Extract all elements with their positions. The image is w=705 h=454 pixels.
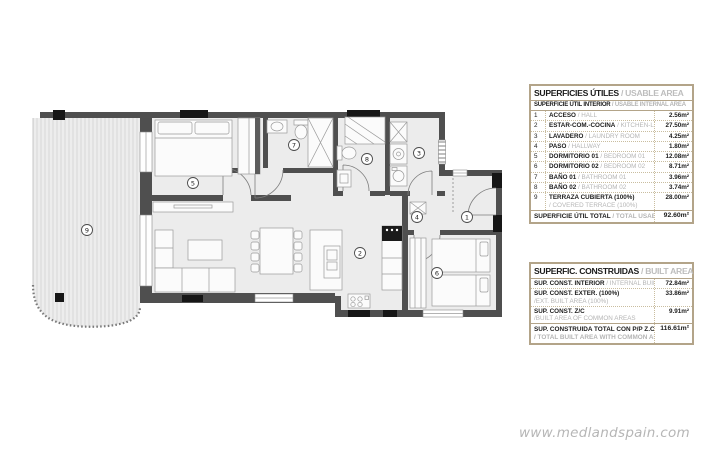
table-row: 6DORMITORIO 02 / BEDROOM 028.71m²: [531, 161, 692, 171]
window-entry-north: [453, 170, 467, 176]
built-area-table: SUPERFIC. CONSTRUIDAS / BUILT AREA SUP. …: [529, 262, 694, 345]
table-row: 8BAÑO 02 / BATHROOM 023.74m²: [531, 182, 692, 192]
dryer-machine: [390, 166, 407, 186]
table-row: 2ESTAR-COM.-COCINA / KITCHEN-LIVING27.50…: [531, 120, 692, 130]
sink-bathroom01: [267, 120, 287, 133]
table-row: 9TERRAZA CUBIERTA (100%)/ COVERED TERRAC…: [531, 192, 692, 210]
cooktop: [348, 294, 370, 308]
table-row: 3LAVADERO / LAUNDRY ROOM4.25m²: [531, 131, 692, 141]
room-label-9: 9: [82, 225, 93, 236]
svg-text:9: 9: [85, 226, 89, 234]
room-label-8: 8: [362, 154, 373, 165]
table-row: 4PASO / HALLWAY1.80m²: [531, 141, 692, 151]
shower-bathroom01: [308, 118, 333, 167]
built-table-rows: SUP. CONST. INTERIOR / INTERNAL BUILT AR…: [531, 279, 692, 323]
closet-bedroom02: [410, 238, 426, 308]
table-row: SUP. CONST. Z/C/BUILT AREA OF COMMON ARE…: [531, 306, 692, 324]
shower-bathroom02: [345, 117, 385, 144]
toilet-bathroom01: [294, 120, 308, 139]
window-laundry-east: [439, 140, 446, 164]
svg-text:7: 7: [292, 141, 296, 149]
washing-machine: [390, 144, 407, 164]
dining-table: [260, 228, 293, 274]
bed-single-a: [432, 239, 490, 272]
svg-text:5: 5: [191, 179, 195, 187]
table-row: 7BAÑO 01 / BATHROOM 013.96m²: [531, 172, 692, 182]
floor-plan: 1 2 3 4 5 6 7 8 9: [24, 72, 510, 354]
bed-single-b: [432, 275, 490, 306]
svg-text:1: 1: [465, 213, 469, 221]
built-total-row: SUP. CONSTRUIDA TOTAL CON P/P Z.C/ TOTAL…: [531, 323, 692, 343]
built-table-title: SUPERFIC. CONSTRUIDAS / BUILT AREA: [531, 264, 692, 279]
room-label-4: 4: [412, 212, 423, 223]
window-bedroom02-south: [423, 310, 463, 317]
room-label-3: 3: [414, 148, 425, 159]
usable-area-table: SUPERFICIES ÚTILES / USABLE AREA SUPERFI…: [529, 84, 694, 224]
svg-text:2: 2: [358, 249, 362, 257]
terrace-area: [33, 118, 140, 327]
sideboard: [153, 202, 233, 212]
floorplan-page: 1 2 3 4 5 6 7 8 9 SUPERFICIES ÚTILES / U…: [0, 0, 705, 454]
coffee-table: [188, 240, 222, 260]
svg-text:3: 3: [417, 149, 421, 157]
wardrobe: [238, 118, 260, 174]
room-label-7: 7: [289, 140, 300, 151]
window-living-west: [140, 215, 152, 286]
window-bedroom01-west: [140, 132, 152, 172]
room-label-5: 5: [188, 178, 199, 189]
usable-total-row: SUPERFICIE ÚTIL TOTAL / TOTAL USABLE ARE…: [531, 210, 692, 222]
kitchen-counter: [382, 226, 402, 290]
toilet-bathroom02: [337, 146, 356, 160]
table-row: SUP. CONST. EXTER. (100%)/EXT. BUILT ARE…: [531, 288, 692, 306]
table-row: SUP. CONST. INTERIOR / INTERNAL BUILT AR…: [531, 279, 692, 288]
oven: [382, 226, 402, 241]
svg-text:6: 6: [435, 269, 439, 277]
usable-table-subheader: SUPERFICIE ÚTIL INTERIOR / USABLE INTERN…: [531, 101, 692, 111]
table-row: 1ACCESO / HALL2.56m²: [531, 111, 692, 120]
usable-table-rows: 1ACCESO / HALL2.56m² 2ESTAR-COM.-COCINA …: [531, 111, 692, 210]
terrace-pillar: [55, 293, 64, 302]
bed-double: [155, 120, 232, 176]
usable-table-title: SUPERFICIES ÚTILES / USABLE AREA: [531, 86, 692, 101]
watermark: www.medlandspain.com: [519, 425, 690, 441]
svg-text:4: 4: [415, 213, 419, 221]
window-living-south: [255, 294, 293, 302]
room-label-2: 2: [355, 248, 366, 259]
room-label-1: 1: [462, 212, 473, 223]
table-row: 5DORMITORIO 01 / BEDROOM 0112.08m²: [531, 151, 692, 161]
water-heater: [390, 122, 407, 142]
sink-bathroom02: [337, 170, 351, 187]
svg-text:8: 8: [365, 155, 369, 163]
room-label-6: 6: [432, 268, 443, 279]
kitchen-island: [310, 230, 342, 290]
